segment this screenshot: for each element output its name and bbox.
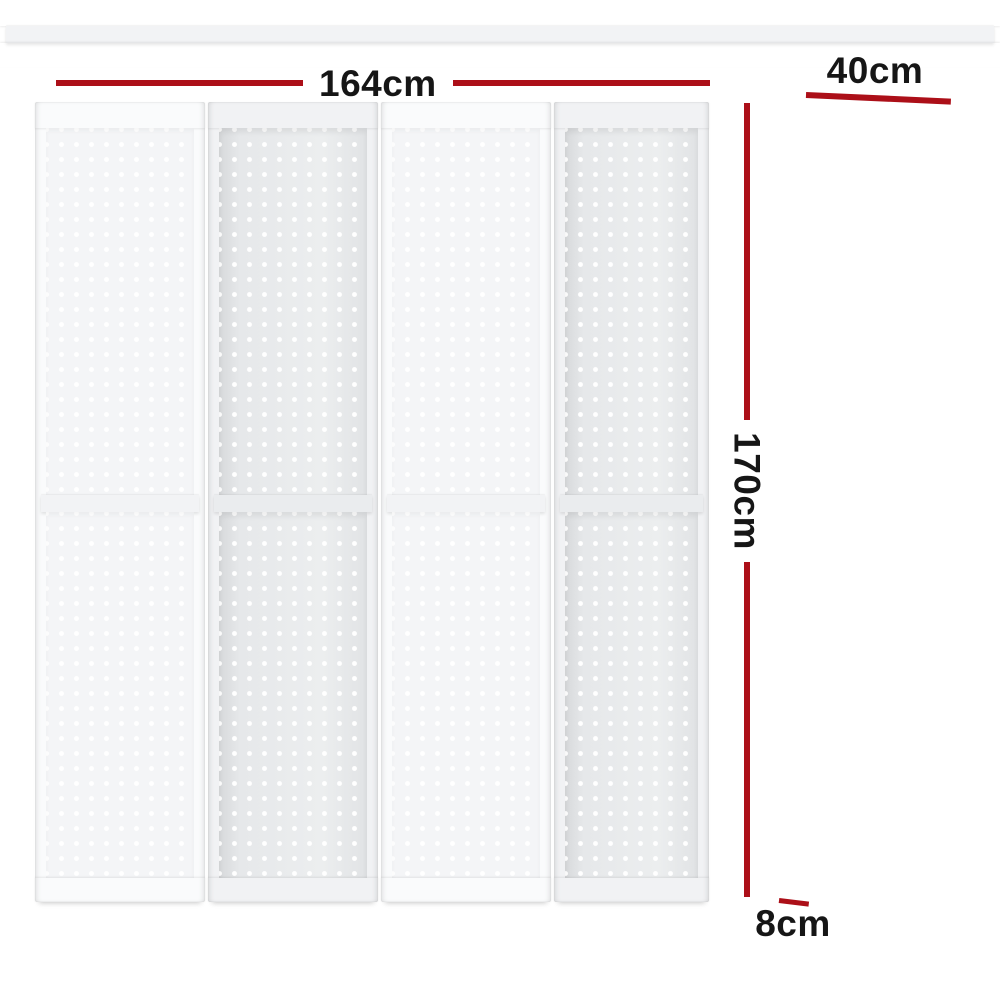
panel-mid-rail — [214, 495, 372, 512]
hinge-icon — [0, 0, 13, 25]
dimension-line — [744, 103, 750, 420]
dimension-line — [56, 80, 303, 86]
panel-bottom-rail — [381, 878, 551, 902]
divider-panel-3 — [381, 102, 551, 902]
pegboard-upper — [46, 128, 194, 495]
pegboard-lower — [392, 512, 540, 879]
dimension-height-label: 170cm — [729, 432, 766, 550]
panel-bottom-rail — [554, 878, 709, 902]
panel-bottom-rail — [35, 878, 205, 902]
dimension-width-label: 164cm — [303, 65, 453, 102]
panel-top-rail — [35, 102, 205, 128]
panel-top-rail — [0, 0, 1000, 26]
dimension-line — [453, 80, 710, 86]
dimension-line — [744, 562, 750, 897]
pegboard-upper — [565, 128, 698, 495]
panel-mid-rail — [560, 495, 703, 512]
panel-mid-rail — [387, 495, 545, 512]
dimension-panel-width-label: 40cm — [800, 52, 950, 89]
panel-mid-rail — [41, 495, 199, 512]
divider-panel-4 — [554, 102, 709, 902]
panel-bottom-rail — [208, 878, 378, 902]
panel-top-rail — [208, 102, 378, 128]
panel-top-rail — [381, 102, 551, 128]
dimension-depth-label: 8cm — [748, 905, 838, 942]
divider-panel-2 — [208, 102, 378, 902]
dimension-line — [806, 92, 951, 105]
dimension-width: 164cm — [56, 62, 710, 104]
pegboard-upper — [392, 128, 540, 495]
divider-panel-1 — [35, 102, 205, 902]
pegboard-upper — [219, 128, 367, 495]
pegboard-lower — [46, 512, 194, 879]
panel-mid-rail — [6, 26, 994, 43]
pegboard-lower — [219, 512, 367, 879]
pegboard-lower — [565, 512, 698, 879]
product-dimension-diagram: 164cm 40cm 170cm 8cm — [0, 0, 1000, 1000]
panel-top-rail — [554, 102, 709, 128]
